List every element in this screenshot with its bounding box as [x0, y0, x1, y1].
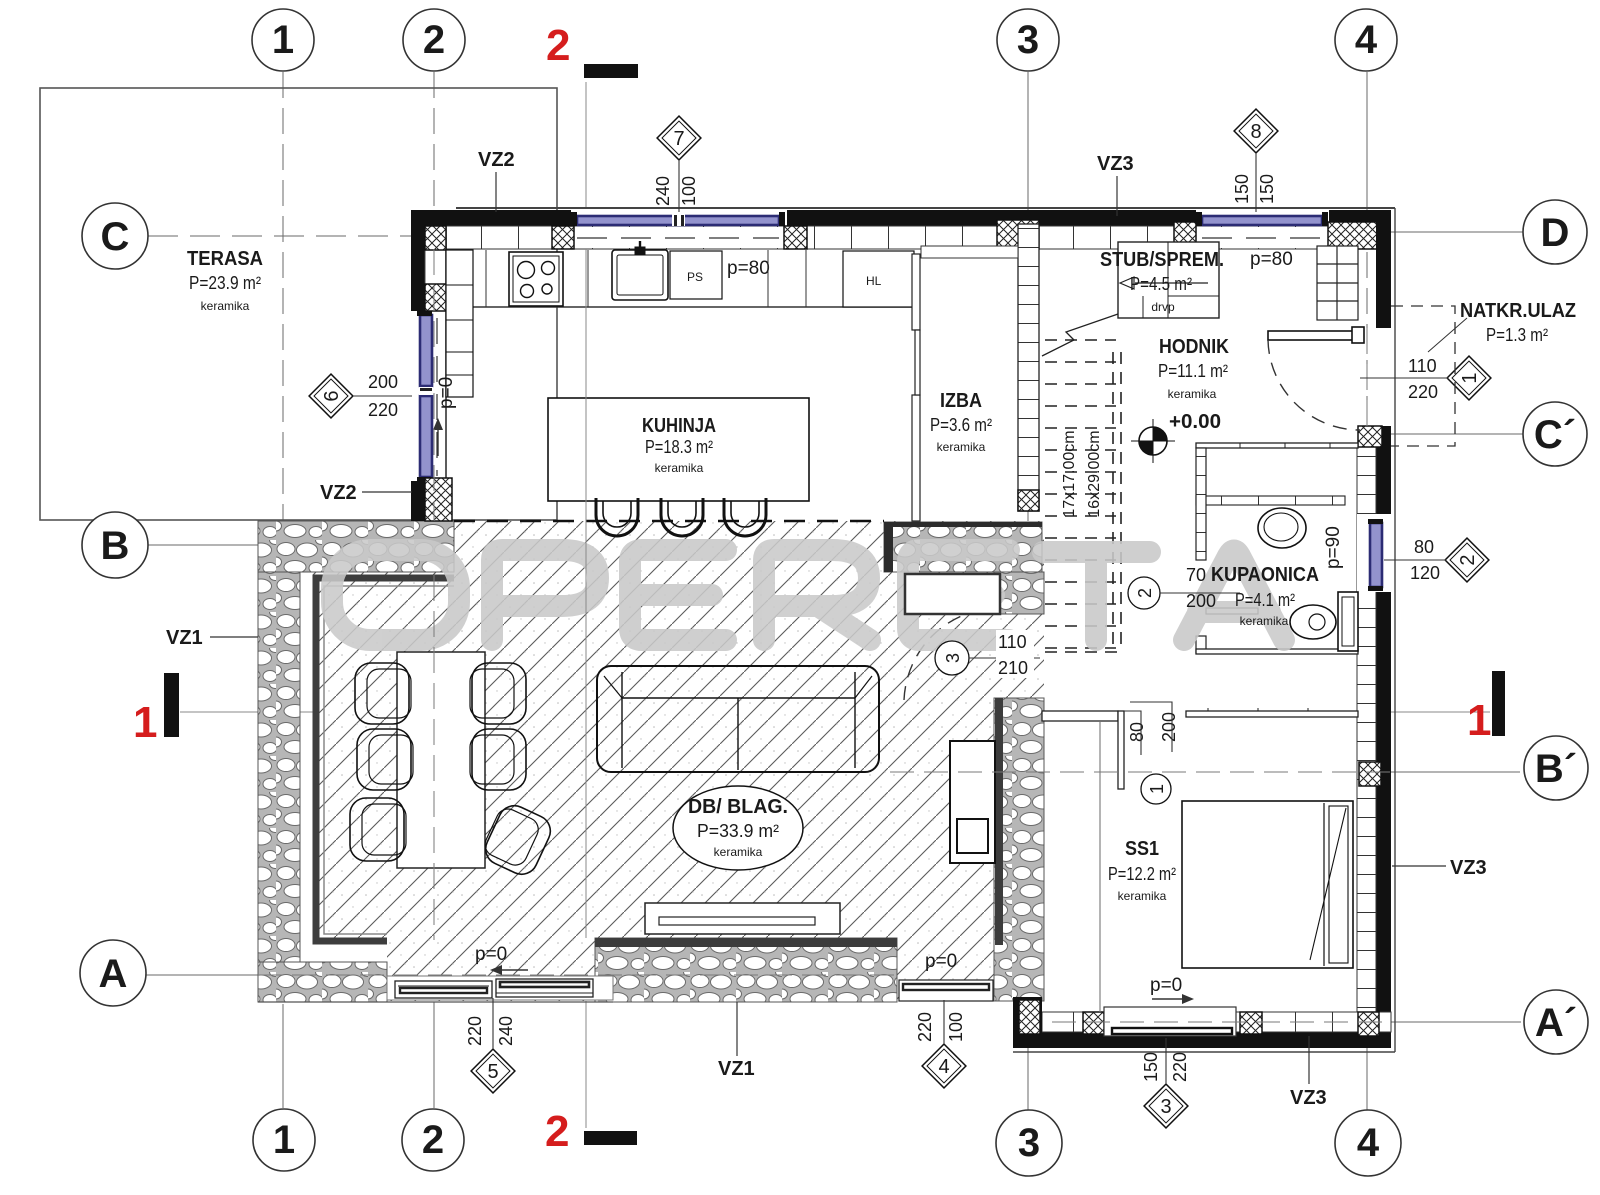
svg-text:p=0: p=0 [1150, 975, 1182, 996]
svg-text:2: 2 [422, 1118, 444, 1162]
svg-text:P=23.9 m²: P=23.9 m² [189, 273, 261, 293]
svg-text:2: 2 [546, 21, 570, 70]
svg-text:220: 220 [465, 1016, 485, 1046]
svg-text:80: 80 [1414, 537, 1434, 557]
svg-text:A: A [99, 952, 128, 996]
svg-text:P=18.3 m²: P=18.3 m² [645, 437, 713, 457]
svg-text:220: 220 [915, 1012, 935, 1042]
svg-text:2: 2 [1457, 554, 1479, 565]
svg-text:p=0: p=0 [475, 944, 507, 965]
svg-text:150: 150 [1232, 174, 1252, 204]
svg-text:P=33.9 m²: P=33.9 m² [697, 821, 779, 841]
svg-text:DB/ BLAG.: DB/ BLAG. [688, 796, 788, 818]
svg-text:5: 5 [487, 1061, 498, 1083]
svg-text:STUB/SPREM.: STUB/SPREM. [1100, 249, 1224, 271]
svg-text:1: 1 [133, 698, 157, 747]
svg-text:p=0: p=0 [925, 951, 957, 972]
svg-text:240: 240 [496, 1016, 516, 1046]
svg-text:keramika: keramika [1168, 387, 1217, 401]
svg-text:110: 110 [1408, 356, 1437, 376]
svg-text:1: 1 [1467, 696, 1491, 745]
svg-text:keramika: keramika [655, 461, 704, 475]
svg-text:4: 4 [938, 1056, 949, 1078]
svg-text:P=4.1 m²: P=4.1 m² [1235, 590, 1295, 610]
svg-text:200: 200 [1186, 591, 1216, 611]
svg-text:240: 240 [653, 176, 673, 206]
svg-text:NATKR.ULAZ: NATKR.ULAZ [1460, 300, 1576, 322]
svg-text:VZ1: VZ1 [718, 1058, 755, 1080]
svg-text:210: 210 [998, 658, 1028, 678]
svg-text:220: 220 [368, 400, 398, 420]
svg-text:220: 220 [1408, 382, 1438, 402]
svg-text:200: 200 [1159, 712, 1179, 742]
svg-text:KUPAONICA: KUPAONICA [1211, 564, 1319, 586]
svg-text:150: 150 [1141, 1052, 1161, 1082]
svg-text:4: 4 [1355, 18, 1378, 62]
svg-text:1: 1 [272, 18, 294, 62]
svg-text:VZ3: VZ3 [1450, 857, 1487, 879]
svg-text:2: 2 [1135, 588, 1155, 598]
svg-text:keramika: keramika [201, 299, 250, 313]
svg-text:2: 2 [545, 1107, 569, 1156]
svg-text:keramika: keramika [1118, 889, 1167, 903]
svg-text:VZ2: VZ2 [320, 482, 357, 504]
svg-text:PS: PS [687, 270, 703, 284]
svg-text:120: 120 [1410, 563, 1440, 583]
svg-text:100: 100 [679, 176, 699, 206]
svg-text:KUHINJA: KUHINJA [642, 415, 716, 437]
svg-text:220: 220 [1170, 1052, 1190, 1082]
svg-text:3: 3 [943, 653, 963, 663]
svg-text:1: 1 [1459, 372, 1481, 383]
svg-text:D: D [1541, 211, 1570, 255]
svg-text:P=3.6 m²: P=3.6 m² [930, 415, 992, 435]
svg-text:SS1: SS1 [1125, 838, 1159, 860]
svg-text:A´: A´ [1535, 1001, 1577, 1045]
svg-text:P=11.1 m²: P=11.1 m² [1158, 361, 1228, 381]
svg-text:17x17.00cm: 17x17.00cm [1061, 430, 1078, 517]
svg-text:3: 3 [1017, 18, 1039, 62]
svg-text:drvp: drvp [1151, 300, 1175, 314]
svg-text:HODNIK: HODNIK [1159, 336, 1229, 358]
svg-text:1: 1 [273, 1118, 295, 1162]
svg-text:200: 200 [368, 372, 398, 392]
svg-text:P=1.3 m²: P=1.3 m² [1486, 325, 1548, 345]
svg-text:p=80: p=80 [727, 258, 770, 279]
svg-text:HL: HL [866, 274, 882, 288]
svg-text:6: 6 [321, 390, 343, 401]
svg-text:p=0: p=0 [436, 377, 457, 409]
svg-text:B´: B´ [1535, 747, 1577, 791]
svg-text:IZBA: IZBA [940, 390, 982, 412]
svg-text:p=80: p=80 [1250, 249, 1293, 270]
svg-text:C: C [101, 215, 130, 259]
svg-text:VZ3: VZ3 [1097, 153, 1134, 175]
svg-text:110: 110 [998, 632, 1027, 652]
svg-text:3: 3 [1160, 1096, 1171, 1118]
svg-text:1: 1 [1147, 784, 1167, 794]
svg-text:P=4.5 m²: P=4.5 m² [1130, 274, 1192, 294]
svg-text:keramika: keramika [1240, 614, 1289, 628]
svg-text:100: 100 [946, 1012, 966, 1042]
svg-text:VZ2: VZ2 [478, 149, 515, 171]
svg-text:16x29.00cm: 16x29.00cm [1086, 430, 1103, 517]
svg-text:C´: C´ [1534, 413, 1576, 457]
svg-text:P=12.2 m²: P=12.2 m² [1108, 864, 1176, 884]
svg-text:VZ3: VZ3 [1290, 1087, 1327, 1109]
svg-text:B: B [101, 524, 130, 568]
svg-text:keramika: keramika [937, 440, 986, 454]
svg-text:TERASA: TERASA [187, 248, 263, 270]
svg-text:3: 3 [1018, 1121, 1040, 1165]
svg-text:p=90: p=90 [1323, 526, 1344, 569]
svg-text:7: 7 [673, 128, 684, 150]
svg-text:4: 4 [1357, 1121, 1380, 1165]
svg-text:150: 150 [1257, 174, 1277, 204]
svg-text:VZ1: VZ1 [166, 627, 203, 649]
svg-text:2: 2 [423, 18, 445, 62]
svg-text:+0.00: +0.00 [1169, 411, 1221, 433]
svg-text:80: 80 [1127, 722, 1147, 742]
svg-text:70: 70 [1186, 565, 1206, 585]
svg-text:keramika: keramika [714, 845, 763, 859]
svg-text:8: 8 [1250, 121, 1261, 143]
